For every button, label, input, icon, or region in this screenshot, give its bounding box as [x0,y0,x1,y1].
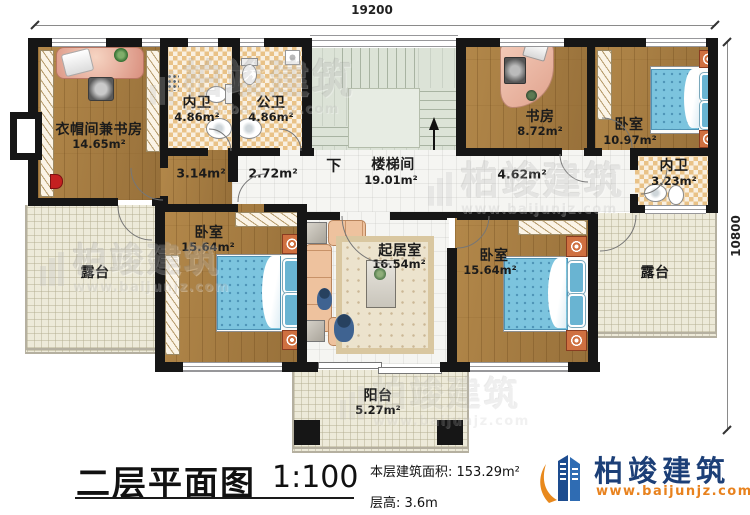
label-hall-right-area: 4.62m² [497,167,546,182]
wall-segment [588,212,598,364]
hall-corridor [232,150,635,212]
label-cloakroom-area: 14.65m² [72,137,125,151]
wall-segment [390,212,447,220]
wall-segment [706,38,718,47]
wall-segment [564,38,646,47]
wall-segment [456,38,466,156]
wardrobe [165,255,180,355]
toilet-icon [668,185,684,205]
bay-box [10,112,42,160]
label-stairwell-area: 19.01m² [364,173,417,187]
wall-segment [232,38,240,156]
monitor-icon [504,57,526,84]
floor-drain-icon [285,50,300,65]
wall-segment [155,362,183,372]
window-stairwell [310,35,458,48]
closet [518,220,587,235]
sliding-door [318,362,382,369]
stair-flight-top [342,46,418,88]
label-terrace-left: 露台 [81,262,110,282]
wall-segment [630,156,638,170]
wall-segment [457,212,590,220]
label-bedroom-tr: 卧室 [615,114,644,134]
wall-segment [28,38,52,47]
wall-segment [630,205,645,213]
label-terrace-right: 露台 [641,262,670,282]
label-bedroom-left: 卧室 [195,222,224,242]
plant-icon [526,90,537,101]
sliding-door [378,367,442,374]
dimension-height: 10800 [729,215,743,257]
label-inner-bath-1: 内卫 [183,92,212,112]
label-inner-bath-1-area: 4.86m² [174,110,219,124]
stair-landing [348,88,420,148]
person-icon [334,314,354,342]
wall-segment [440,362,470,372]
wall-segment [587,38,595,150]
wall-segment [155,204,165,364]
wall-segment [297,204,307,372]
wall-segment [166,38,188,47]
balcony-column-right [437,420,463,445]
label-hall-mid-area: 2.72m² [248,166,297,181]
dimension-width: 19200 [351,3,393,17]
wall-segment [160,148,208,156]
label-cloakroom: 衣帽间兼书房 [56,119,143,139]
label-bedroom-left-area: 15.64m² [181,240,234,254]
label-living-area: 16.54m² [372,257,425,271]
window [188,38,218,47]
window [500,38,564,47]
wall-segment [568,362,600,372]
dimension-line-right [727,42,728,431]
label-bedroom-right: 卧室 [480,245,509,265]
nightstand [566,236,587,257]
window [183,362,282,372]
wall-segment [584,148,602,156]
floor-plan: 衣帽间兼书房 14.65m² 内卫 4.86m² 公卫 4.86m² 下 楼梯间… [0,0,750,515]
pillow [568,294,585,327]
label-balcony: 阳台 [364,385,393,405]
monitor-icon [88,77,114,101]
bed-sheet-fold [262,256,280,328]
label-public-bath: 公卫 [257,92,286,112]
label-study: 书房 [526,106,555,126]
wall-segment [447,248,457,372]
label-hall-left-area: 3.14m² [176,166,225,181]
bed-sheet-fold [684,69,699,128]
plant-icon [114,48,128,62]
wall-right-outer [708,47,718,205]
wall-segment [630,194,638,205]
window [52,38,106,47]
side-table [305,222,327,244]
stair-flight-right [416,88,456,146]
closet [235,212,301,227]
label-balcony-area: 5.27m² [355,403,400,417]
label-study-area: 8.72m² [517,124,562,138]
wall-segment [706,205,718,213]
balcony-column-left [294,420,320,445]
window [238,38,264,47]
label-inner-bath-2-area: 3.23m² [651,174,696,188]
wall-segment [456,148,562,156]
dimension-line-top [35,25,716,26]
wall-stub [228,148,238,182]
wall-segment [302,38,312,156]
wall-segment [305,212,340,220]
window [470,362,568,372]
label-stair-down: 下 [326,155,342,176]
label-public-bath-area: 4.86m² [248,110,293,124]
person-icon [317,288,332,310]
wall-segment [300,148,314,156]
wardrobe [146,50,160,152]
wall-segment [240,148,280,156]
label-stairwell: 楼梯间 [371,154,415,174]
label-bedroom-right-area: 15.64m² [463,263,516,277]
wall-segment [106,38,142,47]
pillow [568,261,585,294]
wall-object-red [50,174,63,189]
toilet-icon [242,64,257,85]
wall-segment [282,362,318,372]
wall-segment [155,204,238,212]
nightstand [566,330,587,351]
wall-segment [447,212,457,218]
bed-sheet-fold [548,258,566,328]
wall-segment [28,198,118,206]
label-inner-bath-2: 内卫 [660,155,689,175]
window [646,38,706,47]
wardrobe [597,50,612,120]
window [645,205,706,214]
stair-treads-left [310,126,348,146]
label-bedroom-tr-area: 10.97m² [603,133,656,147]
